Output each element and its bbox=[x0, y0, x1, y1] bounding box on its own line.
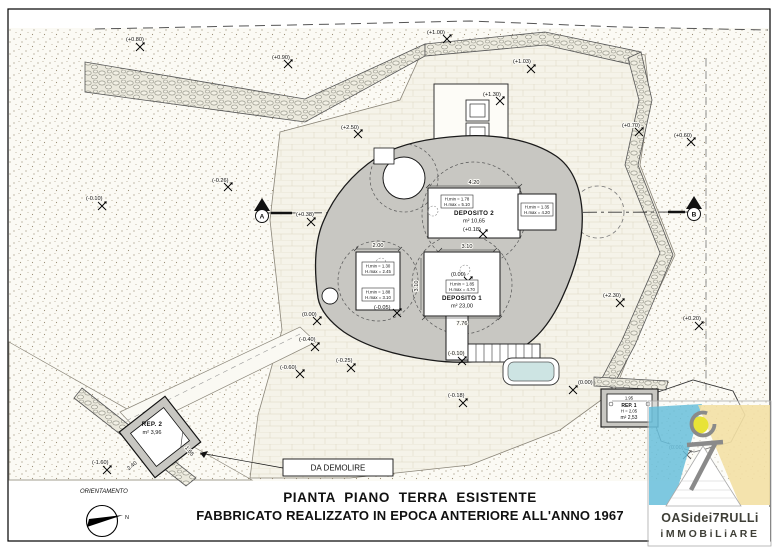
water-basin bbox=[503, 358, 559, 385]
spot-elevation-label: (+0.60) bbox=[674, 133, 692, 139]
spot-elevation-label: (+0.20) bbox=[683, 316, 701, 322]
well-level-label: (+1.30) bbox=[483, 92, 501, 98]
dim-label: 4.20 bbox=[469, 180, 480, 186]
dim-label: 1.95 bbox=[625, 396, 634, 401]
room-level-label: (+0.18) bbox=[463, 227, 481, 233]
drawing-sheet: A B (+1.30) bbox=[0, 0, 779, 550]
dim-label: 3.10 bbox=[462, 244, 473, 250]
spot-elevation-label: (+0.80) bbox=[126, 37, 144, 43]
spot-elevation-label: (0.00) bbox=[578, 380, 593, 386]
height-box-line: H.min = 1.85 bbox=[450, 281, 475, 286]
room-area-label: m² 10,65 bbox=[463, 219, 485, 225]
spot-elevation-label: (-0.10) bbox=[448, 351, 465, 357]
spot-elevation-label: (-0.40) bbox=[299, 337, 316, 343]
height-box-line: H.min = 1.78 bbox=[445, 196, 470, 201]
room-name-label: DEPOSITO 2 bbox=[454, 210, 494, 217]
spot-elevation-label: (-0.25) bbox=[336, 358, 353, 364]
spot-elevation-label: (+0.90) bbox=[272, 55, 290, 61]
dim-label: 7.76 bbox=[457, 321, 468, 327]
spot-elevation-label: (+2.30) bbox=[603, 293, 621, 299]
room-height-label: H = 2,05 bbox=[621, 409, 638, 414]
spot-elevation-label: (+2.50) bbox=[341, 125, 359, 131]
room-level-label: (0.00) bbox=[451, 272, 466, 278]
height-box-line: H.min = 1.88 bbox=[366, 289, 391, 294]
spot-elevation-label: (+1.03) bbox=[513, 59, 531, 65]
demolition-note-label: DA DEMOLIRE bbox=[311, 464, 366, 473]
height-box-line: H.max = 2.45 bbox=[365, 269, 391, 274]
drawing-title-line2: FABBRICATO REALIZZATO IN EPOCA ANTERIORE… bbox=[196, 508, 624, 523]
section-a-label: A bbox=[260, 214, 265, 221]
spot-elevation-label: (-0.60) bbox=[280, 365, 297, 371]
height-box-line: H.min = 1.35 bbox=[525, 204, 550, 209]
compass-north-label: N bbox=[125, 515, 129, 521]
spot-elevation-label: (-0.26) bbox=[212, 178, 229, 184]
spot-elevation-label: (-0.18) bbox=[448, 393, 465, 399]
height-box-line: H.max = 4.20 bbox=[524, 210, 550, 215]
room-name-label: DEPOSITO 1 bbox=[442, 295, 482, 302]
agency-logo: OASidei7RULLi iMMOBiLiARE bbox=[648, 401, 771, 546]
height-box-line: H.max = 5.10 bbox=[444, 202, 470, 207]
spot-elevation-label: (+1.00) bbox=[427, 30, 445, 36]
dim-label: 3.10 bbox=[414, 281, 420, 292]
spot-elevation-label: (-0.10) bbox=[86, 196, 103, 202]
logo-name-line2: iMMOBiLiARE bbox=[660, 528, 759, 540]
room-area-label: m² 2,53 bbox=[621, 415, 638, 421]
site-plan-svg: A B (+1.30) bbox=[0, 0, 779, 550]
height-box-line: H.max = 4.70 bbox=[449, 287, 475, 292]
section-b-label: B bbox=[692, 212, 697, 219]
entrance-notch bbox=[374, 148, 394, 164]
spot-elevation-label: (+0.70) bbox=[622, 123, 640, 129]
orientation-label: ORIENTAMENTO bbox=[80, 489, 128, 495]
alcove-left bbox=[322, 288, 338, 304]
dim-label: 2.00 bbox=[373, 243, 384, 249]
drawing-title-line1: PIANTA PIANO TERRA ESISTENTE bbox=[283, 490, 537, 505]
room-area-label: m² 23,00 bbox=[451, 304, 473, 310]
room-area-label: m² 3,96 bbox=[143, 430, 162, 436]
height-box-line: H.min = 1.30 bbox=[366, 263, 391, 268]
room-name-label: REP. 2 bbox=[142, 421, 163, 428]
room-level-label: (-0.05) bbox=[374, 305, 391, 311]
spot-elevation-label: (-1.60) bbox=[92, 460, 109, 466]
logo-name-line1: OASidei7RULLi bbox=[661, 511, 759, 525]
spot-elevation-label: (+0.38) bbox=[296, 212, 314, 218]
height-box-line: H.max = 3.10 bbox=[365, 295, 391, 300]
spot-elevation-label: (0.00) bbox=[302, 312, 317, 318]
